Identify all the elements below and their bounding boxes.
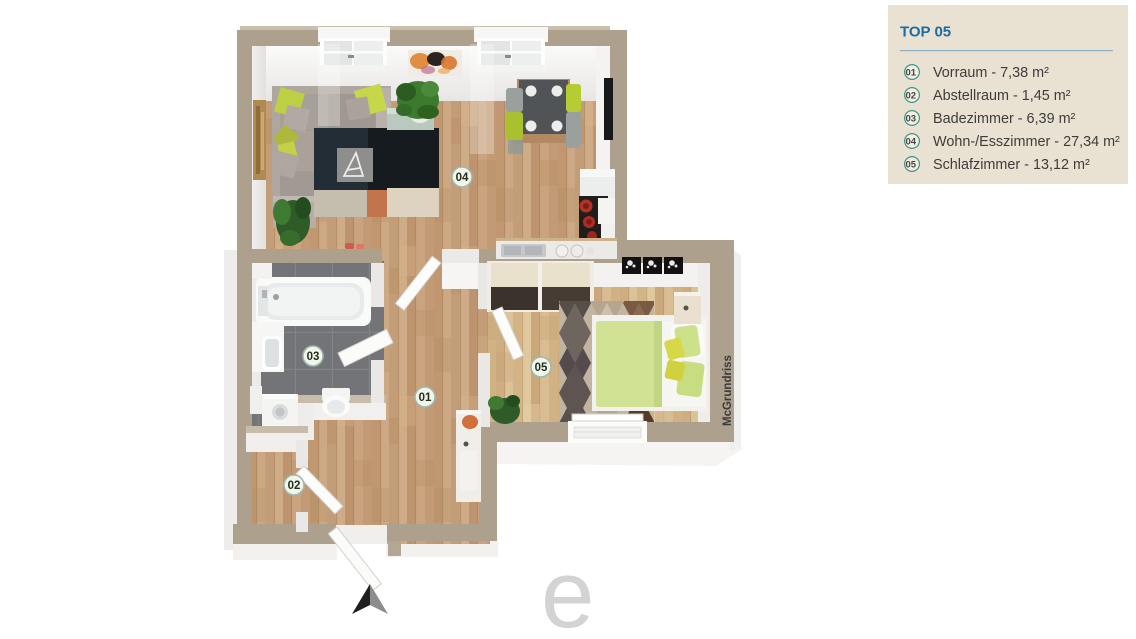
svg-text:Wohn-/Esszimmer - 27,34 m²: Wohn-/Esszimmer - 27,34 m² — [933, 134, 1120, 150]
svg-text:03: 03 — [307, 351, 320, 363]
svg-text:05: 05 — [535, 362, 548, 374]
svg-text:01: 01 — [419, 392, 432, 404]
svg-text:02: 02 — [288, 480, 301, 492]
svg-text:05: 05 — [906, 160, 917, 171]
svg-text:Abstellraum - 1,45 m²: Abstellraum - 1,45 m² — [933, 88, 1071, 104]
svg-text:e: e — [541, 541, 594, 639]
svg-text:01: 01 — [906, 68, 917, 79]
svg-text:04: 04 — [906, 137, 917, 148]
svg-text:04: 04 — [456, 172, 469, 184]
svg-text:Vorraum - 7,38 m²: Vorraum - 7,38 m² — [933, 65, 1049, 81]
svg-text:TOP 05: TOP 05 — [900, 24, 951, 41]
svg-text:02: 02 — [906, 91, 917, 102]
svg-text:McGrundriss: McGrundriss — [722, 355, 734, 426]
svg-text:03: 03 — [906, 114, 917, 125]
svg-text:Badezimmer - 6,39 m²: Badezimmer - 6,39 m² — [933, 111, 1076, 127]
svg-text:Schlafzimmer - 13,12 m²: Schlafzimmer - 13,12 m² — [933, 157, 1090, 173]
